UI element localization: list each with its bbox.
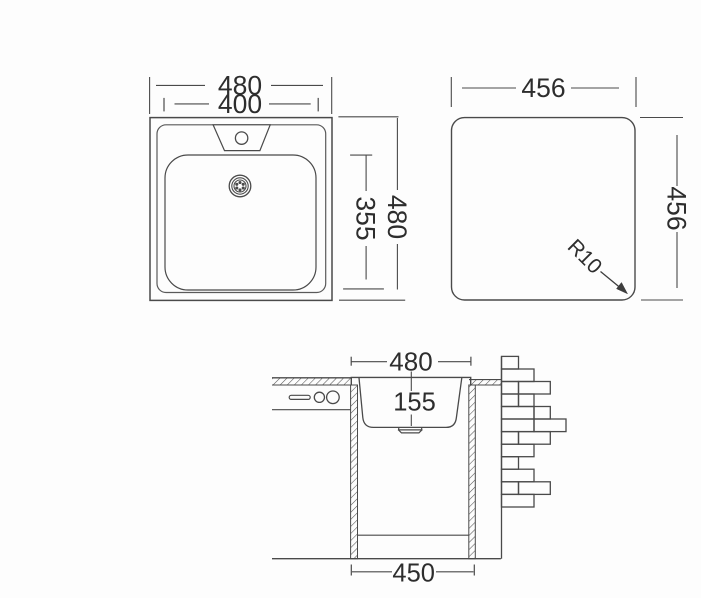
svg-text:456: 456 <box>521 73 565 103</box>
svg-text:155: 155 <box>393 389 436 417</box>
svg-text:450: 450 <box>392 560 435 588</box>
svg-text:480: 480 <box>382 195 412 239</box>
svg-text:400: 400 <box>218 89 262 119</box>
svg-text:355: 355 <box>351 196 381 240</box>
svg-text:456: 456 <box>662 186 692 230</box>
